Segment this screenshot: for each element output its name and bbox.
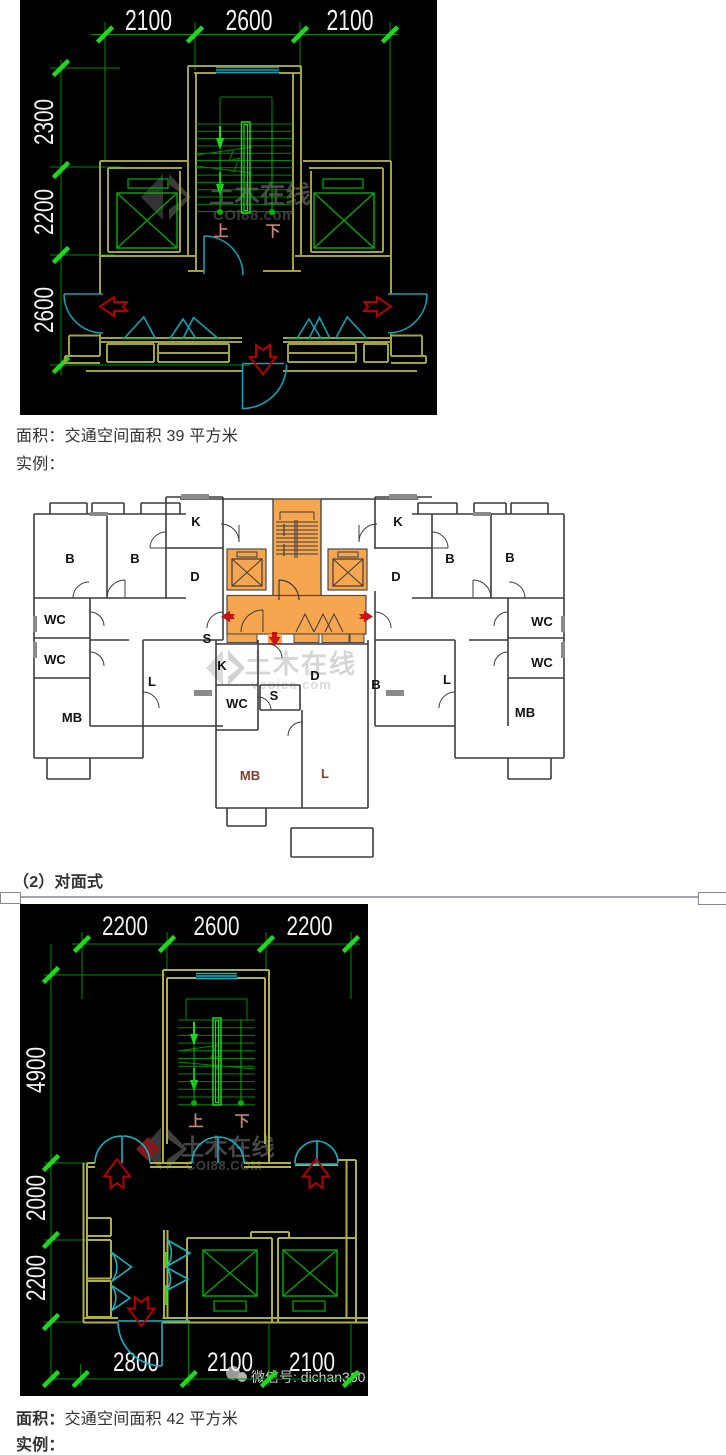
svg-text:WC: WC [44,612,66,627]
svg-text:2600: 2600 [226,5,273,37]
svg-text:B: B [505,550,514,565]
svg-text:COI88.COM: COI88.COM [186,1158,262,1173]
svg-text:L: L [321,766,329,781]
svg-text:S: S [203,631,212,646]
svg-text:2200: 2200 [29,189,59,235]
svg-text:B: B [130,551,139,566]
svg-text:MB: MB [515,705,535,720]
svg-text:B: B [445,551,454,566]
svg-text:WC: WC [226,696,248,711]
svg-text:MB: MB [62,710,82,725]
svg-text:2200: 2200 [102,911,148,941]
svg-text:WC: WC [44,652,66,667]
svg-text:2100: 2100 [327,5,374,37]
svg-text:K: K [217,658,227,673]
svg-text:MB: MB [240,768,260,783]
svg-text:COI88.com: COI88.com [213,207,296,224]
svg-text:土木在线: 土木在线 [245,649,357,679]
svg-text:K: K [191,514,201,529]
svg-text:2600: 2600 [29,287,59,333]
svg-text:2200: 2200 [287,911,333,941]
svg-text:2100: 2100 [289,1347,335,1377]
svg-text:2300: 2300 [29,99,59,145]
svg-text:4900: 4900 [21,1047,51,1093]
svg-text:2600: 2600 [194,911,240,941]
svg-text:L: L [148,674,156,689]
svg-text:L: L [443,672,451,687]
svg-text:上: 上 [213,223,228,240]
svg-text:土木在线: 土木在线 [181,1134,275,1160]
svg-text:2100: 2100 [125,5,172,37]
svg-text:K: K [393,514,403,529]
svg-text:2000: 2000 [21,1175,51,1221]
svg-text:2800: 2800 [113,1347,159,1377]
svg-text:下: 下 [265,223,280,240]
svg-text:上: 上 [188,1113,203,1130]
svg-text:B: B [65,551,74,566]
svg-text:WC: WC [531,655,553,670]
svg-text:WC: WC [531,614,553,629]
svg-text:D: D [391,569,400,584]
svg-text:S: S [270,688,279,703]
svg-text:2200: 2200 [21,1255,51,1301]
svg-text:B: B [371,677,380,692]
svg-text:D: D [190,569,199,584]
svg-text:下: 下 [234,1113,249,1130]
svg-text:2100: 2100 [207,1347,253,1377]
svg-text:D: D [310,668,319,683]
